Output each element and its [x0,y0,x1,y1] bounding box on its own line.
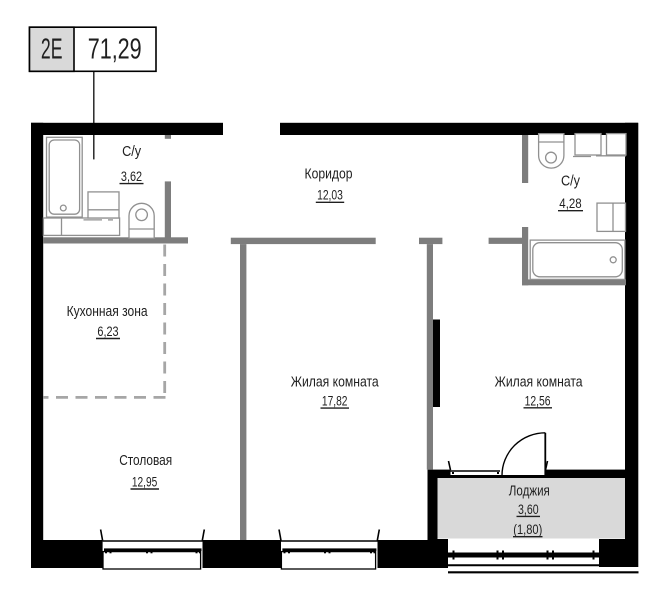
svg-text:3,60: 3,60 [518,502,539,518]
svg-text:6,23: 6,23 [97,324,118,340]
svg-text:4,28: 4,28 [559,196,581,212]
svg-text:С/у: С/у [561,172,580,189]
svg-text:3,62: 3,62 [121,169,142,185]
svg-text:12,56: 12,56 [525,393,551,409]
svg-text:Лоджия: Лоджия [509,482,550,499]
svg-text:(1,80): (1,80) [513,522,542,538]
svg-text:С/у: С/у [122,143,141,160]
svg-text:12,95: 12,95 [132,474,157,490]
svg-text:Жилая комната: Жилая комната [291,373,379,390]
svg-text:Жилая комната: Жилая комната [495,373,583,390]
svg-text:Столовая: Столовая [119,452,172,469]
svg-text:12,03: 12,03 [317,188,343,204]
svg-text:Кухонная зона: Кухонная зона [67,303,148,320]
svg-text:17,82: 17,82 [322,394,348,410]
svg-text:Коридор: Коридор [305,166,353,183]
svg-text:2Е: 2Е [41,33,63,65]
svg-text:71,29: 71,29 [88,33,142,65]
